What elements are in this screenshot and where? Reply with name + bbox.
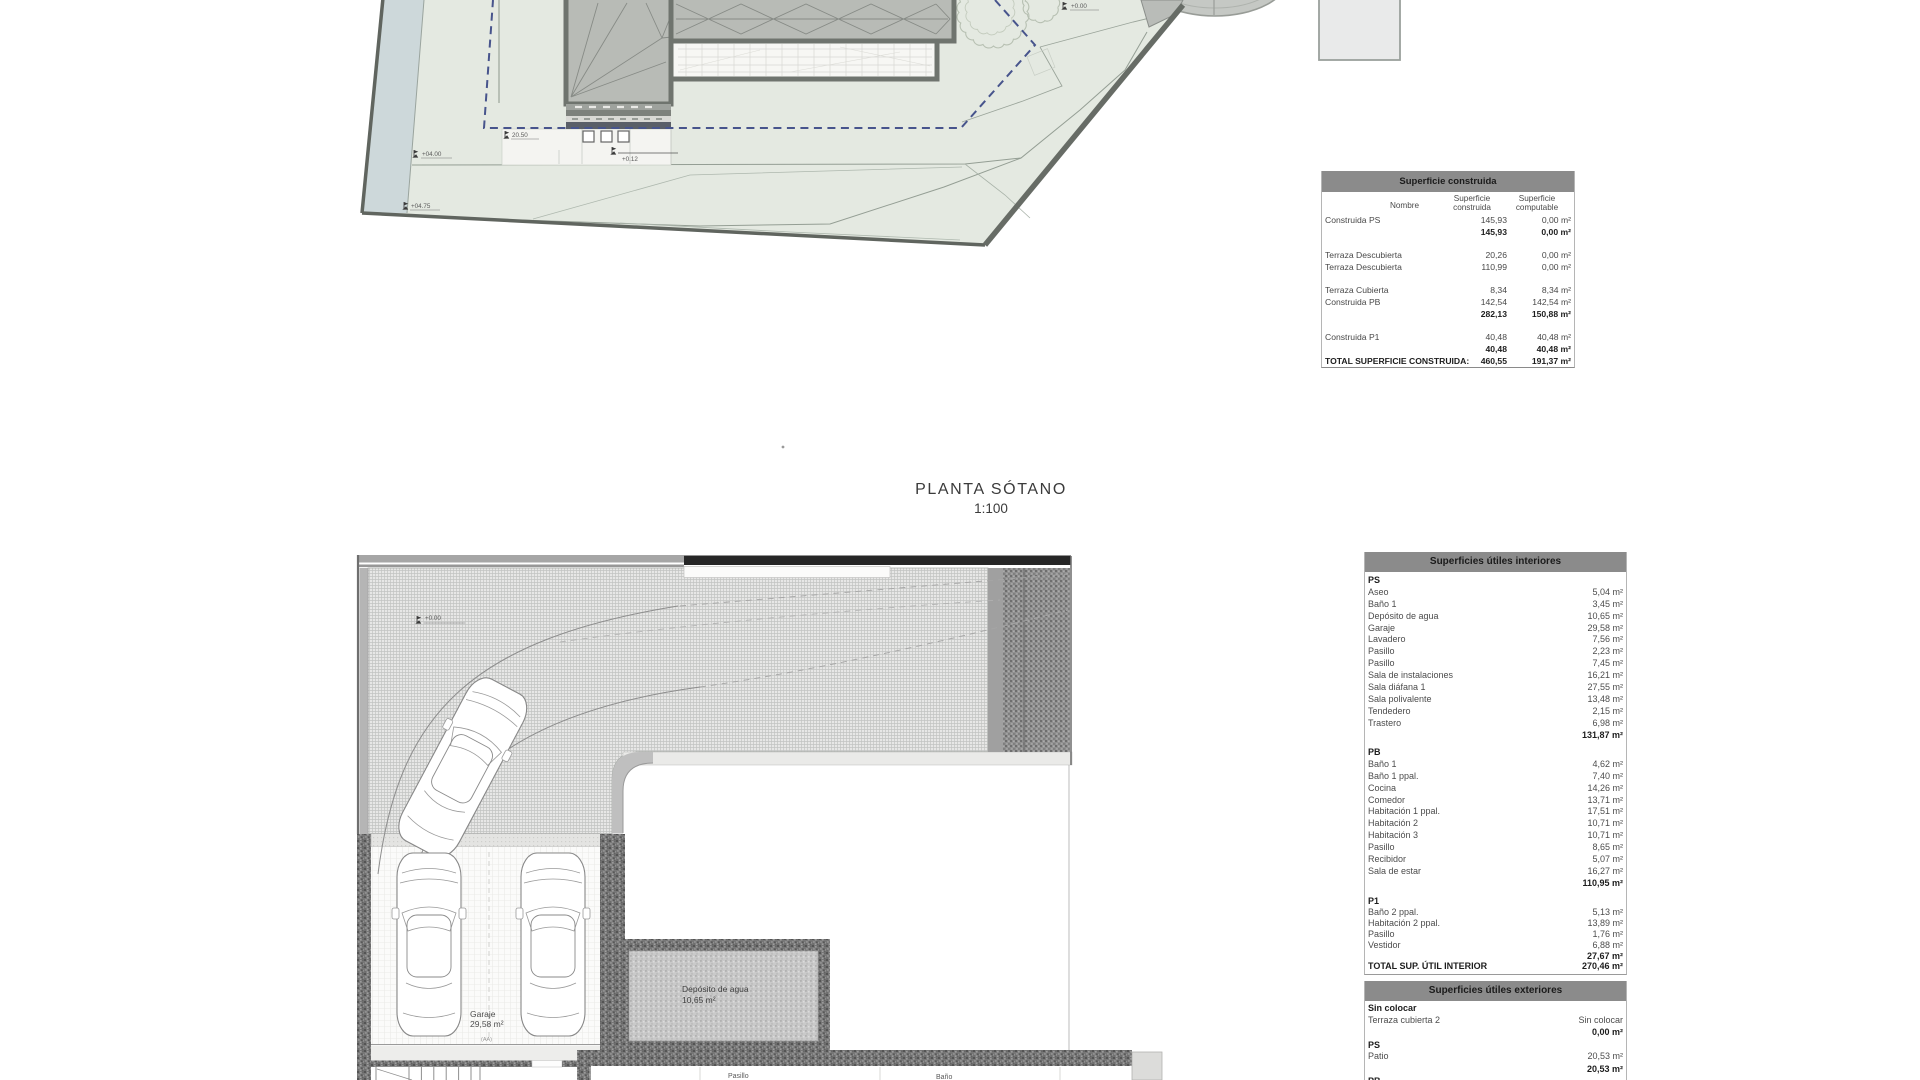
svg-text:+0.00: +0.00	[1071, 3, 1087, 10]
svg-text:(AA): (AA)	[481, 1037, 492, 1043]
svg-text:Pasillo: Pasillo	[728, 1073, 749, 1080]
svg-text:+0.12: +0.12	[622, 156, 638, 163]
svg-text:+0.00: +0.00	[425, 615, 441, 622]
svg-text:Garaje: Garaje	[470, 1009, 496, 1019]
svg-text:+04.00: +04.00	[422, 151, 442, 158]
svg-text:20.50: 20.50	[512, 132, 528, 139]
svg-text:Depósito de agua: Depósito de agua	[682, 984, 749, 994]
svg-text:+04.75: +04.75	[411, 203, 431, 210]
svg-text:29,58 m²: 29,58 m²	[470, 1019, 504, 1029]
svg-text:Baño: Baño	[936, 1074, 952, 1080]
svg-text:10,65 m²: 10,65 m²	[682, 995, 716, 1005]
